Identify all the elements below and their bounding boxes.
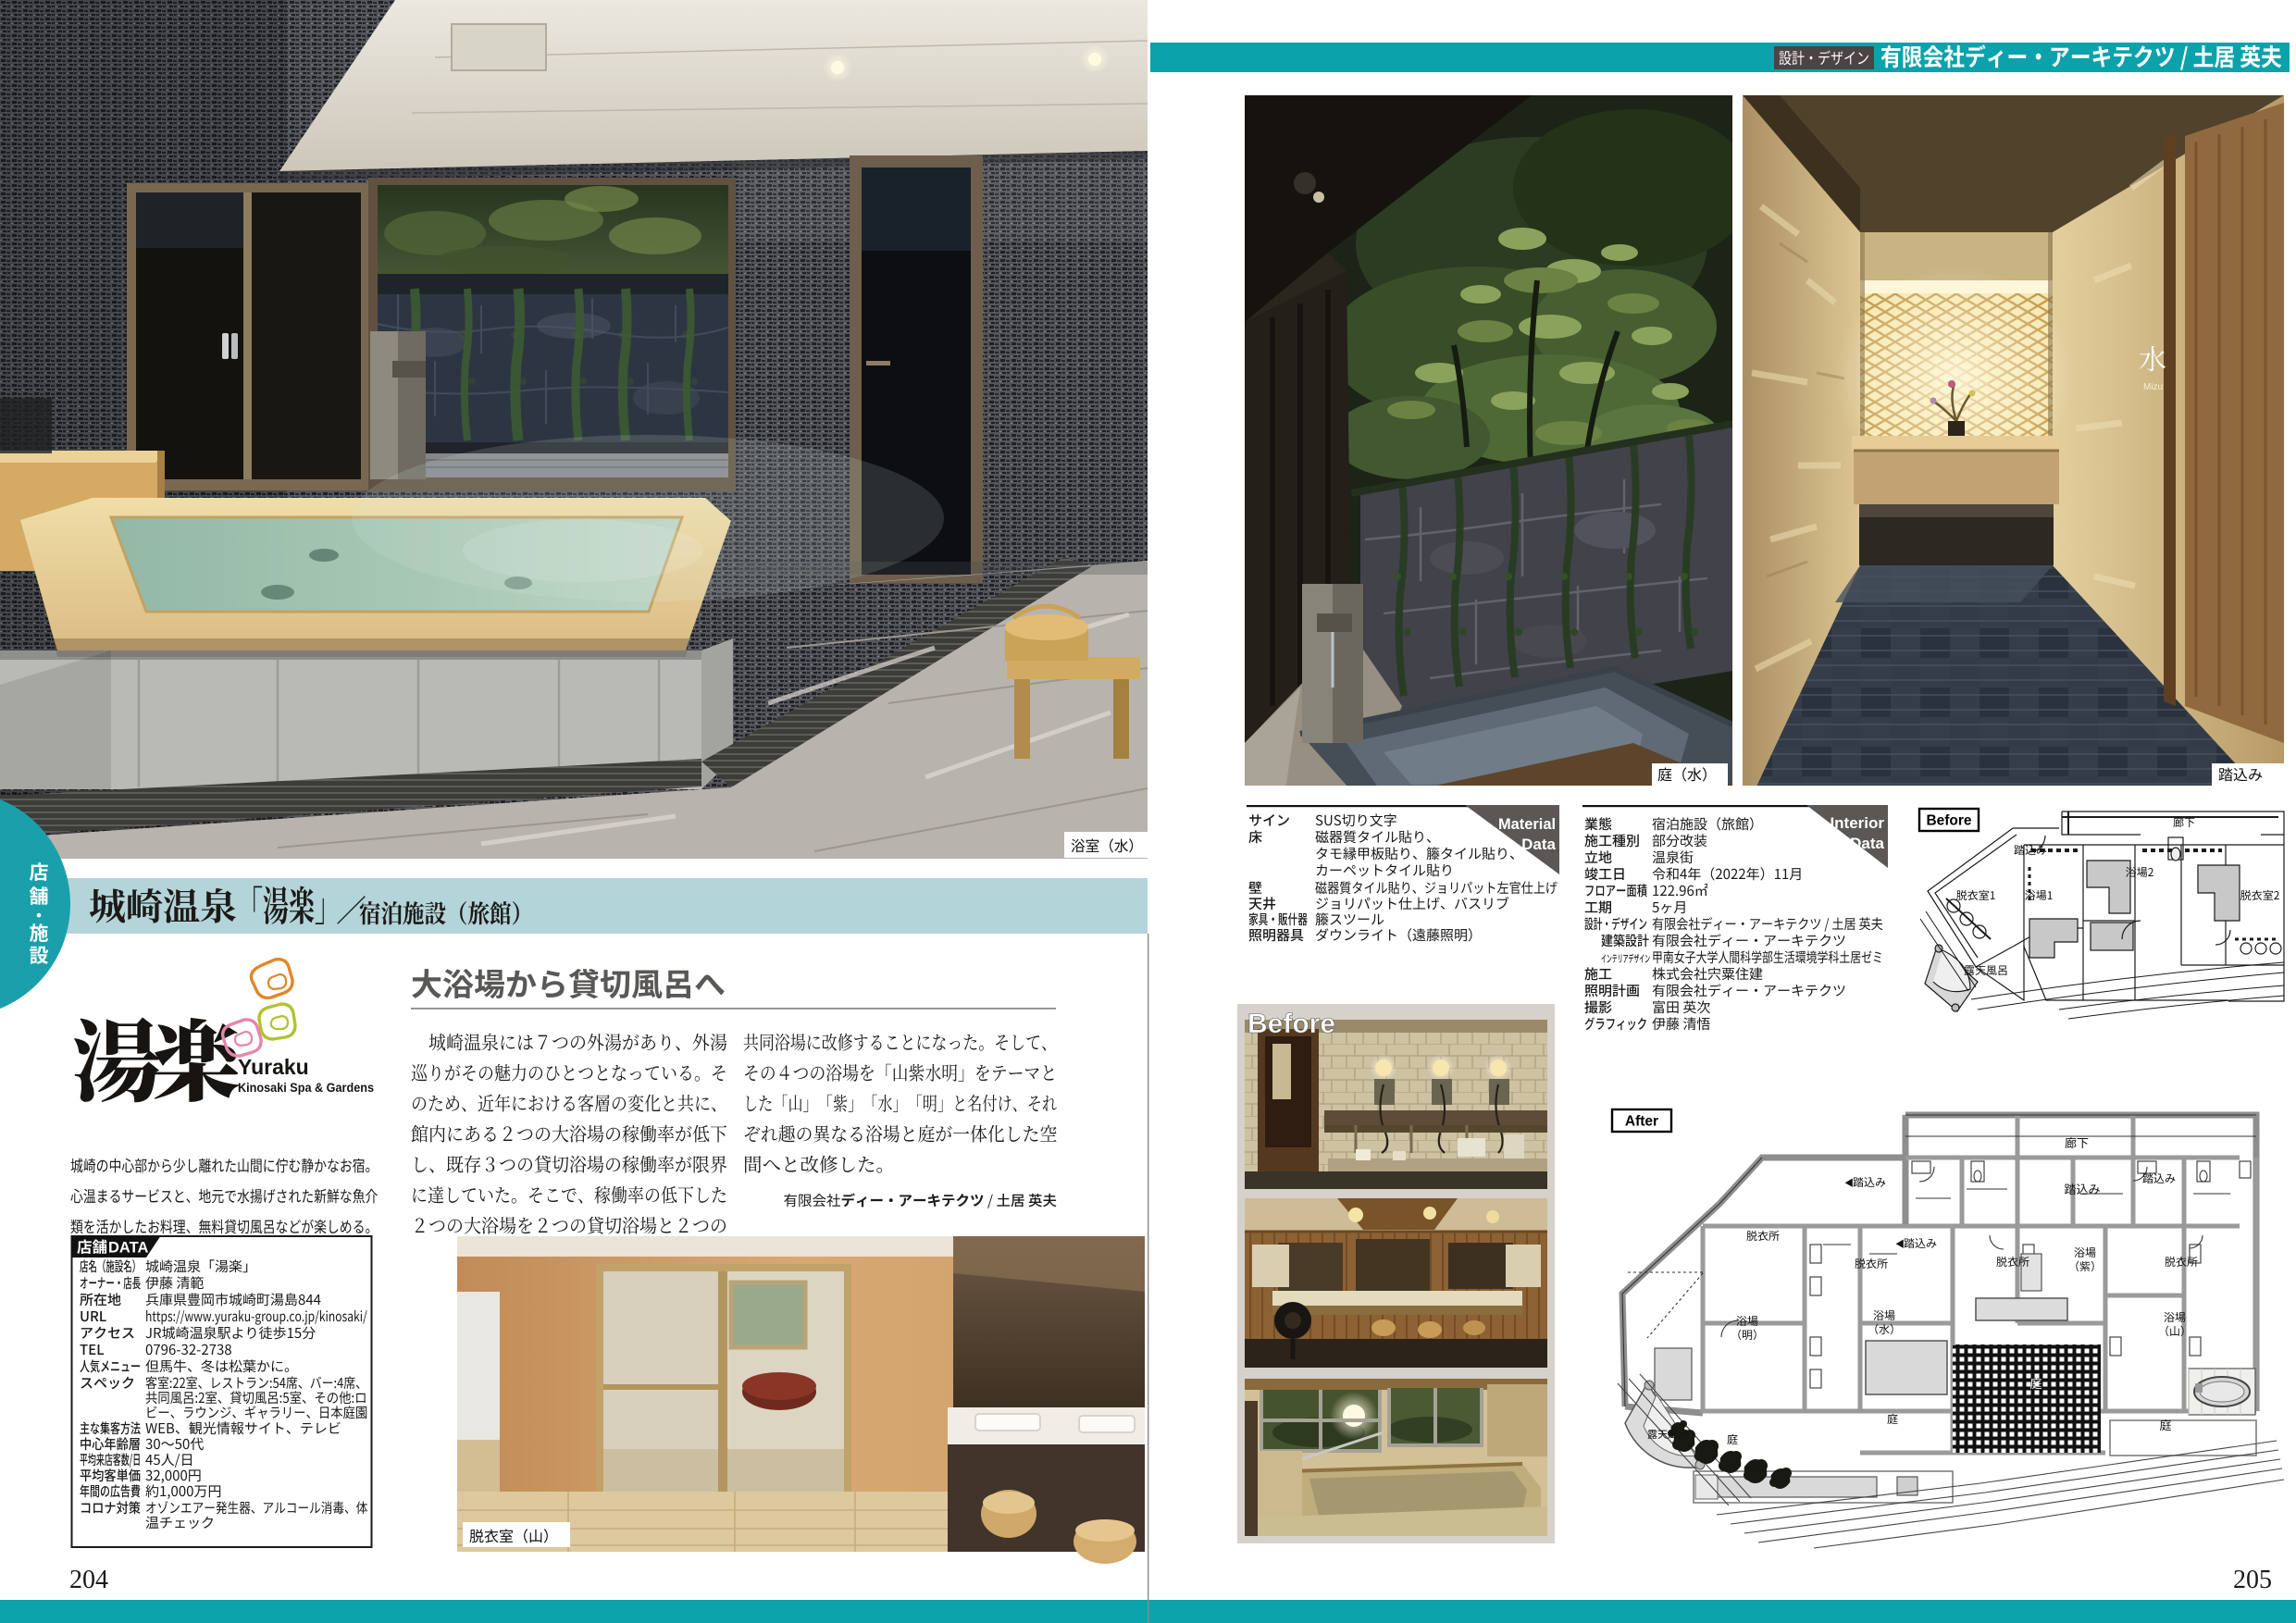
svg-text:Yuraku: Yuraku	[238, 1055, 309, 1079]
svg-text:205: 205	[2233, 1566, 2272, 1594]
svg-text:Kinosaki Spa & Gardens: Kinosaki Spa & Gardens	[238, 1080, 374, 1095]
svg-text:DATA: DATA	[108, 1240, 148, 1257]
svg-text:Mizu: Mizu	[2143, 382, 2163, 392]
svg-text:Data: Data	[1850, 835, 1884, 852]
svg-text:Before: Before	[1926, 813, 1971, 829]
svg-text:Material: Material	[1498, 815, 1556, 833]
svg-text:Before: Before	[1247, 1009, 1335, 1039]
svg-text:Interior: Interior	[1830, 814, 1884, 832]
svg-text:After: After	[1625, 1114, 1658, 1130]
svg-text:Data: Data	[1521, 836, 1556, 853]
svg-text:204: 204	[69, 1566, 108, 1594]
